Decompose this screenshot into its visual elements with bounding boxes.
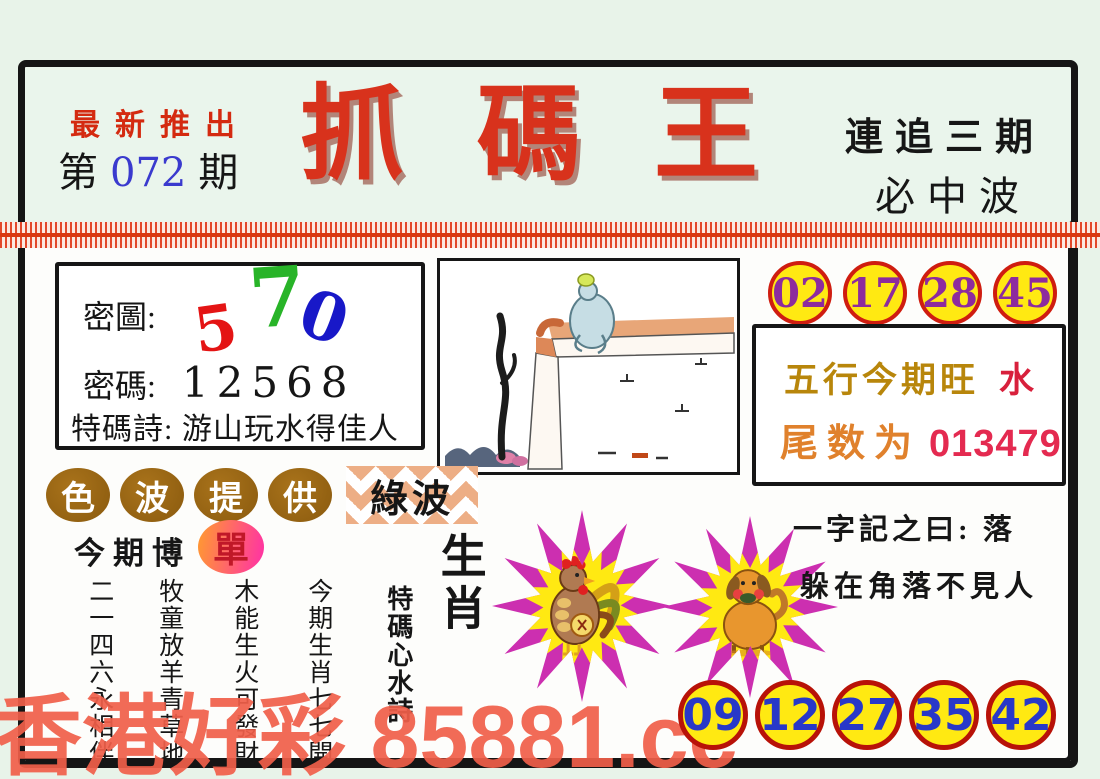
bet-label: 今期博 — [74, 528, 191, 573]
color-wave-oval: 波 — [120, 468, 184, 522]
five-elements-box: 五行今期旺水 尾数为013479 — [752, 324, 1066, 486]
odd-bet-value: 單 — [213, 521, 249, 573]
bottom-number-row: 09 12 27 35 42 — [678, 680, 1056, 750]
color-wave-oval: 提 — [194, 468, 258, 522]
chase-three-periods-text: 連追三期 — [845, 106, 1045, 161]
tail-numbers-label: 尾数为 — [780, 423, 921, 465]
secret-map-graphic: 5 7 0 — [179, 256, 379, 356]
five-elements-label: 五行今期旺 — [784, 361, 979, 400]
top-number-ball: 45 — [993, 261, 1057, 325]
color-wave-row: 色 波 提 供 綠波 — [46, 466, 478, 524]
bottom-number-ball: 27 — [832, 680, 902, 750]
secret-code-label: 密碼: — [83, 368, 156, 404]
top-number-ball: 17 — [843, 261, 907, 325]
must-hit-wave-text: 必中波 — [875, 164, 1031, 222]
frog-illustration — [437, 258, 740, 475]
issue-line: 第072期 — [58, 140, 238, 198]
tail-numbers-value: 013479 — [929, 423, 1062, 465]
issue-prefix: 第 — [58, 150, 98, 195]
green-wave-value: 綠波 — [346, 466, 478, 524]
secret-code-row: 密碼:12568 — [83, 358, 356, 407]
glyph-red-5: 5 — [189, 289, 242, 367]
special-poem-label: 特碼詩: — [71, 413, 173, 446]
title-char-2: 碼 — [477, 80, 581, 192]
promo-text: 最新推出 — [70, 100, 250, 144]
five-elements-value: 水 — [999, 361, 1038, 400]
top-number-row: 02 17 28 45 — [768, 261, 1057, 325]
zodiac-heading: 生肖 — [434, 532, 485, 636]
site-watermark: 香港好彩 85881.cc — [0, 666, 738, 779]
special-poem-text: 游山玩水得佳人 — [182, 413, 399, 446]
tail-numbers-line: 尾数为013479 — [780, 412, 1062, 467]
odd-bet-badge: 單 — [198, 520, 264, 574]
dog-icon — [707, 557, 792, 657]
issue-number: 072 — [110, 150, 186, 196]
bottom-number-ball: 12 — [755, 680, 825, 750]
five-elements-line: 五行今期旺水 — [784, 352, 1038, 403]
top-number-ball: 02 — [768, 261, 832, 325]
issue-suffix: 期 — [198, 150, 238, 195]
bottom-number-ball: 42 — [986, 680, 1056, 750]
secret-code-value: 12568 — [182, 358, 356, 407]
frog-illustration-svg — [440, 261, 737, 472]
page-title: 抓 碼 王 — [300, 80, 758, 192]
riddle-line-1: 一字記之曰: 落 — [793, 506, 1016, 548]
title-char-3: 王 — [654, 80, 758, 192]
secret-code-box: 密圖: 5 7 0 密碼:12568 特碼詩: 游山玩水得佳人 — [55, 262, 425, 450]
bottom-number-ball: 09 — [678, 680, 748, 750]
color-wave-oval: 色 — [46, 468, 110, 522]
secret-map-label: 密圖: — [83, 292, 156, 338]
red-zigzag-divider — [0, 222, 1100, 248]
top-number-ball: 28 — [918, 261, 982, 325]
lottery-tip-sheet: 最新推出 第072期 抓 碼 王 連追三期 必中波 密圖: 5 7 0 密碼:1… — [0, 0, 1100, 779]
title-char-1: 抓 — [300, 80, 404, 192]
bottom-number-ball: 35 — [909, 680, 979, 750]
color-wave-oval: 供 — [268, 468, 332, 522]
riddle-line-2: 躲在角落不見人 — [800, 563, 1038, 605]
rooster-icon — [537, 551, 627, 661]
special-poem-row: 特碼詩: 游山玩水得佳人 — [71, 404, 399, 448]
